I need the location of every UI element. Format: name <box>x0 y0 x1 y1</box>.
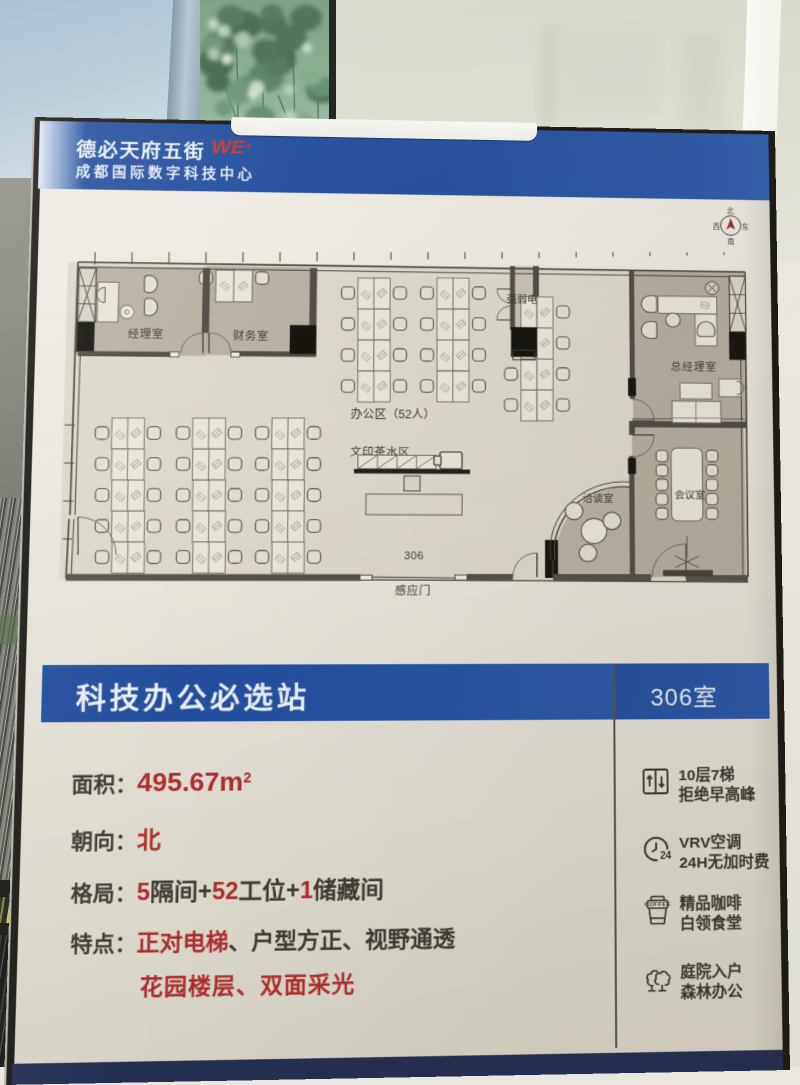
svg-text:洽谈室: 洽谈室 <box>582 492 613 505</box>
svg-text:感应门: 感应门 <box>395 583 431 597</box>
svg-text:财务室: 财务室 <box>233 330 269 343</box>
svg-text:办公区（52人）: 办公区（52人） <box>350 407 435 421</box>
svg-text:306: 306 <box>404 550 424 562</box>
svg-text:南: 南 <box>727 237 734 246</box>
svg-text:会议室: 会议室 <box>675 488 706 501</box>
svg-text:东: 东 <box>741 223 748 232</box>
svg-text:北: 北 <box>727 207 735 216</box>
svg-text:西: 西 <box>713 222 720 231</box>
svg-text:总经理室: 总经理室 <box>671 360 718 373</box>
svg-text:经理室: 经理室 <box>128 328 165 341</box>
svg-text:强弱电: 强弱电 <box>507 293 538 306</box>
